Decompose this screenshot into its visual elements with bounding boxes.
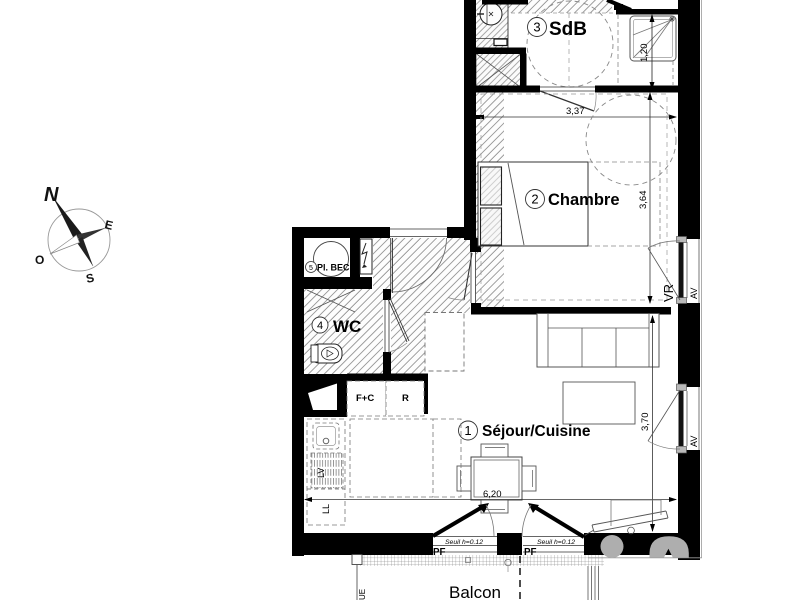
svg-text:SdB: SdB [549,19,587,40]
svg-text:O: O [35,253,44,267]
svg-text:3,37: 3,37 [566,106,585,117]
svg-text:3,64: 3,64 [638,191,649,210]
svg-text:N: N [44,184,59,206]
svg-text:Seuil h=0.12: Seuil h=0.12 [537,539,575,546]
svg-text:AV: AV [689,436,699,447]
svg-text:Séjour/Cuisine: Séjour/Cuisine [482,423,591,440]
svg-text:Seuil h=0.12: Seuil h=0.12 [445,539,483,546]
svg-text:4: 4 [317,320,323,332]
svg-text:Balcon: Balcon [449,583,501,600]
svg-text:VR: VR [661,284,676,302]
svg-text:Pl. BEC: Pl. BEC [317,263,350,273]
svg-text:5: 5 [309,265,313,272]
svg-text:2: 2 [531,192,538,207]
svg-text:F+C: F+C [356,393,374,404]
svg-text:1,20: 1,20 [639,44,650,63]
svg-text:Chambre: Chambre [548,191,620,209]
svg-text:LV: LV [316,468,326,478]
svg-text:UE: UE [358,589,367,600]
svg-text:3,70: 3,70 [640,413,651,432]
svg-text:LL: LL [321,504,331,514]
svg-text:WC: WC [333,317,361,336]
svg-text:1: 1 [464,423,471,438]
svg-text:3: 3 [533,20,540,35]
svg-text:AV: AV [689,288,699,299]
svg-text:R: R [402,393,409,404]
svg-text:6,20: 6,20 [483,489,502,500]
